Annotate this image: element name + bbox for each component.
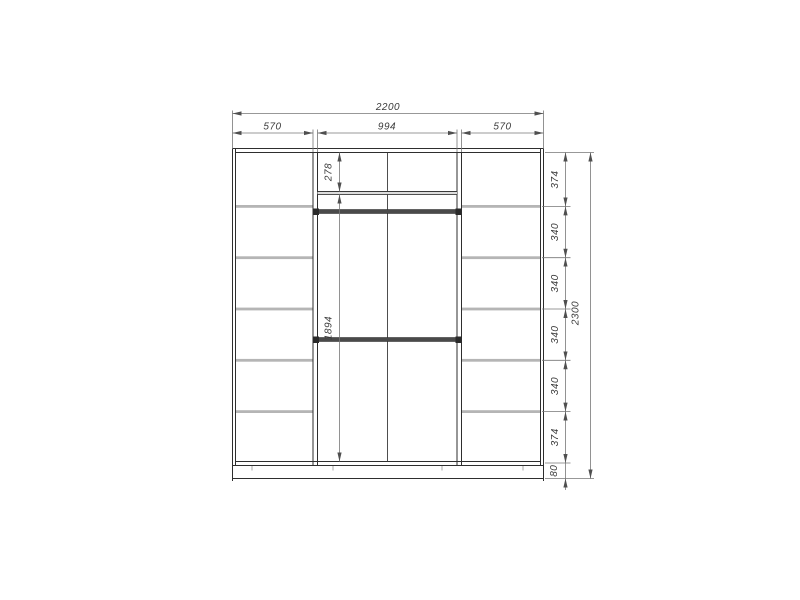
right-shelf-column — [462, 205, 540, 413]
dim-left-section-label: 570 — [263, 122, 281, 133]
cabinet-frame — [233, 149, 544, 482]
dim-middle-section-label: 994 — [378, 122, 396, 133]
drawing-canvas: 2200 570 994 570 374 340 340 340 340 37 — [0, 0, 800, 600]
shelf — [462, 308, 540, 311]
shelf — [462, 256, 540, 259]
shelf — [236, 359, 313, 362]
shelf — [236, 410, 313, 413]
dim-top-shelf-height-label: 278 — [324, 163, 335, 182]
shelf — [236, 205, 313, 208]
dim-total-height-label: 2300 — [571, 301, 582, 326]
dim-hanging-height-label: 1894 — [324, 316, 335, 340]
dim-seg-5-label: 340 — [550, 377, 561, 395]
shelf — [236, 308, 313, 311]
dim-total-width-label: 2200 — [375, 102, 400, 113]
dim-right-section-label: 570 — [493, 122, 511, 133]
dim-seg-2-label: 340 — [550, 223, 561, 241]
dims-top-width: 2200 570 994 570 — [233, 102, 544, 152]
plinth-feet — [252, 466, 523, 471]
shelf — [462, 410, 540, 413]
dim-seg-1-label: 374 — [550, 170, 561, 188]
dim-seg-3-label: 340 — [550, 274, 561, 292]
shelf — [462, 359, 540, 362]
shelf — [236, 256, 313, 259]
dim-seg-4-label: 340 — [550, 326, 561, 344]
middle-top-shelf — [318, 192, 458, 194]
dims-middle-interior: 278 1894 — [324, 153, 340, 462]
dim-seg-6-label: 374 — [550, 428, 561, 446]
left-shelf-column — [236, 205, 313, 413]
dim-seg-7-label: 80 — [549, 465, 560, 477]
wardrobe-dimension-drawing: 2200 570 994 570 374 340 340 340 340 37 — [0, 0, 800, 600]
shelf — [462, 205, 540, 208]
dims-right-height: 374 340 340 340 340 374 80 2300 — [542, 153, 594, 491]
